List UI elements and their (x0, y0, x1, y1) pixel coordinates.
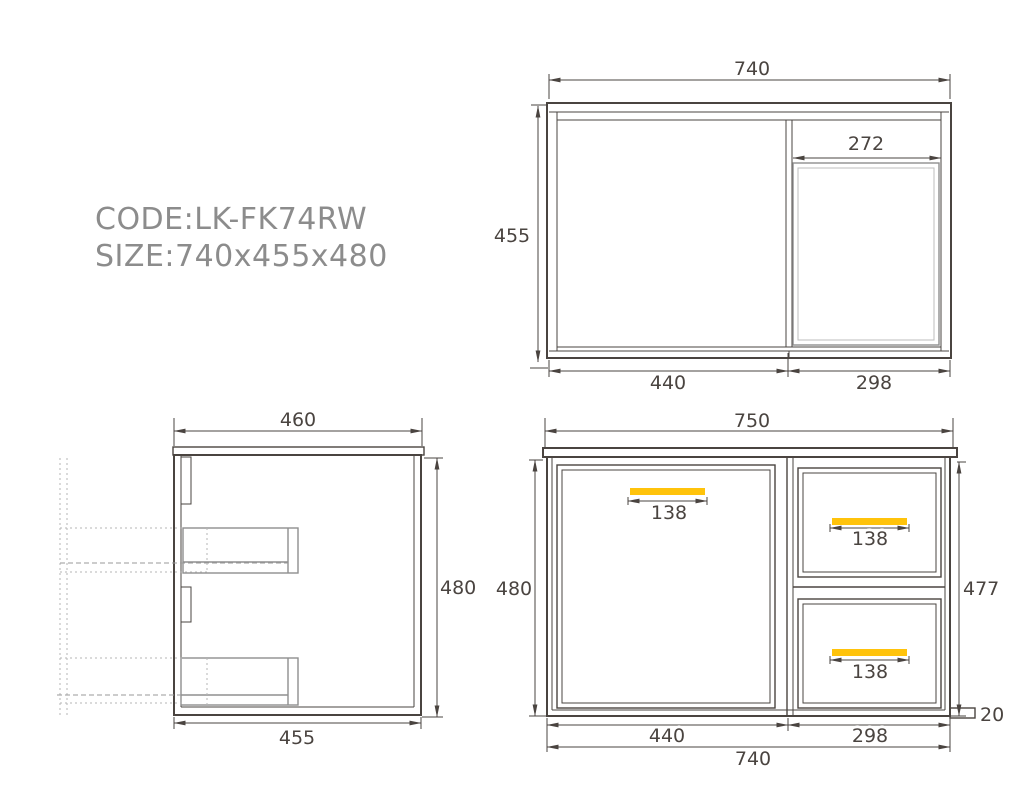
dim-side-panel-depth: 20 (980, 704, 1004, 726)
dim-label: 440 (649, 725, 685, 747)
dim-side-height: 480 (422, 458, 476, 717)
dim-bottom-drawer-handle: 138 (830, 656, 909, 683)
front-view: 750 480 477 20 138 (496, 410, 1004, 770)
side-countertop (173, 447, 424, 455)
dim-label: 138 (852, 661, 888, 683)
dim-label: 750 (734, 410, 770, 432)
dim-label: 138 (852, 528, 888, 550)
dim-side-top-depth: 460 (174, 409, 422, 446)
product-code: CODE:LK-FK74RW (95, 201, 388, 238)
side-view: 460 480 455 (57, 409, 476, 749)
product-label: CODE:LK-FK74RW SIZE:740x455x480 (95, 201, 388, 275)
top-view-outline (547, 103, 951, 358)
dim-label: 138 (651, 502, 687, 524)
dim-top-overall-depth: 455 (494, 105, 548, 368)
top-drawer-handle (832, 518, 907, 525)
dim-label: 20 (980, 704, 1004, 726)
door-handle (630, 488, 705, 495)
side-drawer-box-bottom (181, 658, 298, 705)
dim-label: 460 (280, 409, 316, 431)
side-drawer-box-top (183, 528, 298, 573)
dim-front-cabinet-width: 740 (547, 747, 950, 770)
dim-label: 440 (650, 372, 686, 394)
product-size: SIZE:740x455x480 (95, 238, 388, 275)
dim-label: 477 (963, 578, 999, 600)
basin-cutout-inner (798, 168, 934, 340)
dim-front-left-height: 480 (496, 460, 546, 716)
dim-top-bottom-split: 440 298 (549, 353, 950, 394)
dim-label: 298 (856, 372, 892, 394)
bottom-drawer-handle (832, 649, 907, 656)
dim-side-bottom-depth: 455 (174, 717, 421, 749)
dim-label: 455 (279, 727, 315, 749)
dim-label: 740 (735, 748, 771, 770)
dim-top-drawer-handle: 138 (830, 524, 909, 550)
side-door-edge-top (181, 457, 191, 504)
dim-top-overall-width: 740 (549, 58, 950, 99)
technical-drawing: 740 455 272 440 298 (0, 0, 1024, 785)
side-extension-guides (57, 458, 288, 718)
top-view: 740 455 272 440 298 (494, 58, 951, 394)
dim-front-countertop-width: 750 (545, 410, 953, 447)
dim-label: 480 (496, 578, 532, 600)
dim-label: 740 (734, 58, 770, 80)
side-door-edge-bottom (181, 587, 191, 622)
basin-cutout-outer (793, 163, 939, 345)
dim-basin-width: 272 (793, 133, 941, 162)
dim-label: 455 (494, 225, 530, 247)
drawing-sheet: 740 455 272 440 298 (0, 0, 1024, 785)
dim-label: 272 (848, 133, 884, 155)
dim-label: 480 (440, 577, 476, 599)
dim-front-right-height: 477 (951, 462, 999, 716)
dim-door-handle: 138 (628, 497, 707, 524)
dim-label: 298 (852, 725, 888, 747)
front-countertop (543, 448, 957, 457)
